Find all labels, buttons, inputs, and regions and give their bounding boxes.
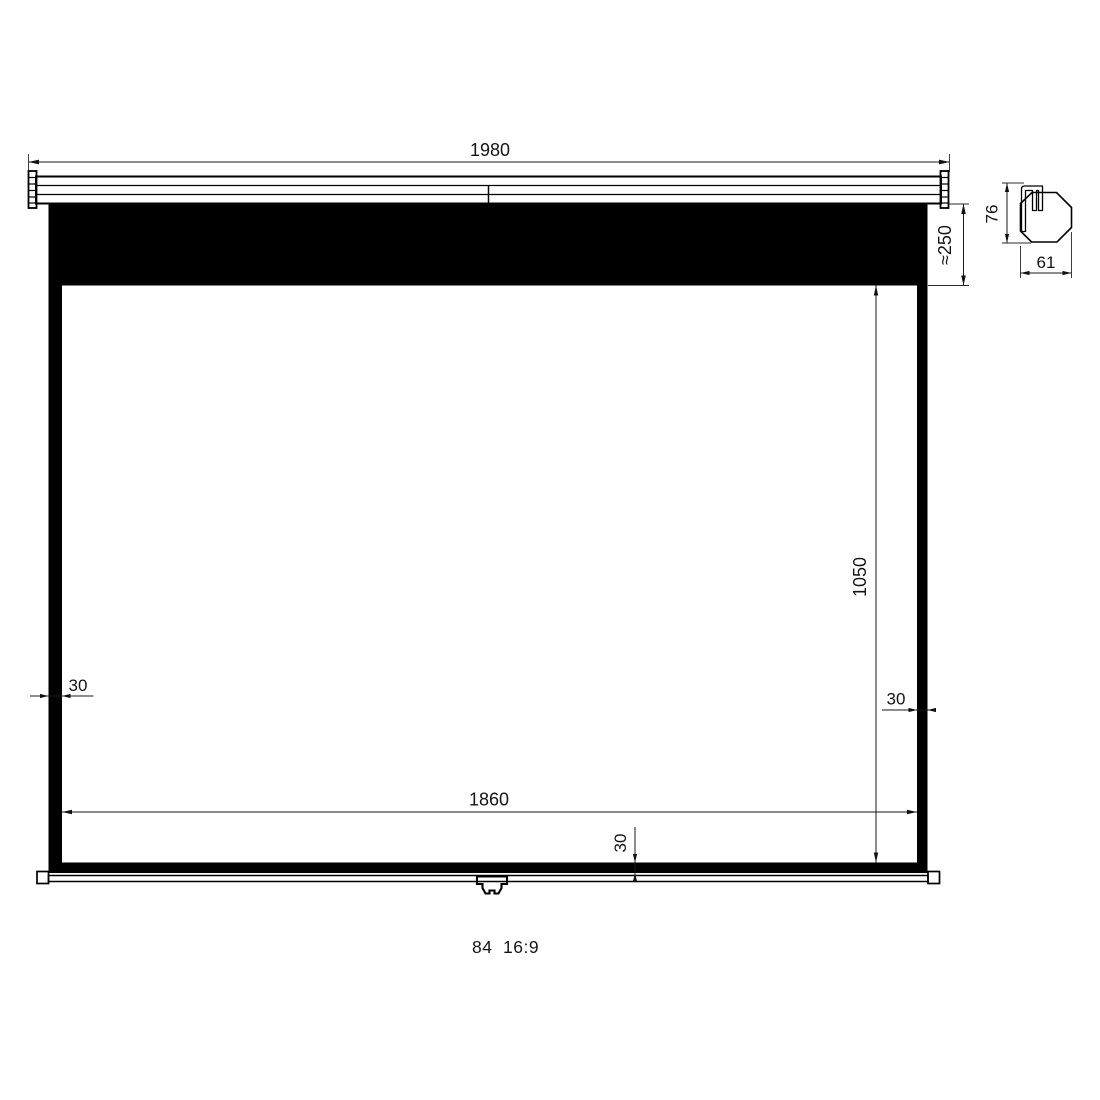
pull-handle	[477, 877, 507, 894]
arrowhead-bottom	[1005, 234, 1009, 243]
slat-end-cap-right	[928, 872, 940, 884]
caption-aspect-ratio: 16:9	[503, 937, 539, 957]
arrowhead-right	[1063, 271, 1072, 275]
dim-label-black-drop: ≈250	[935, 225, 955, 265]
screen-front-view: 1980	[29, 140, 970, 894]
dim-overall-width: 1980	[29, 140, 950, 172]
arrowhead-right	[939, 160, 950, 165]
drawing-page: 1980	[0, 0, 1100, 1100]
caption-size: 84	[472, 937, 492, 957]
arrowhead-left	[1021, 271, 1030, 275]
casing-cross-section	[1021, 193, 1072, 243]
viewing-area	[62, 286, 917, 863]
dim-label-viewing-width: 1860	[469, 790, 509, 810]
dim-label-overall-width: 1980	[470, 140, 510, 160]
dim-black-drop: ≈250	[928, 204, 969, 286]
dim-label-casing-depth: 61	[1037, 253, 1056, 272]
arrowhead	[928, 708, 937, 712]
drawing-caption: 84 16:9	[472, 937, 539, 957]
housing-bar	[29, 171, 949, 208]
technical-drawing-canvas: 1980	[0, 0, 1100, 1100]
arrowhead-top	[961, 204, 966, 214]
screen-cloth	[49, 204, 928, 873]
dim-label-right-border: 30	[887, 690, 906, 709]
arrowhead	[40, 694, 49, 698]
arrowhead-bottom	[961, 276, 966, 286]
dim-label-casing-height: 76	[983, 205, 1002, 224]
dim-label-bottom-border: 30	[611, 834, 630, 853]
arrowhead-top	[1005, 183, 1009, 192]
bottom-slat-bar	[37, 872, 940, 894]
slat-end-cap-left	[37, 872, 49, 884]
dim-label-left-border: 30	[69, 676, 88, 695]
dim-label-viewing-height: 1050	[850, 557, 870, 597]
arrowhead	[633, 873, 637, 882]
casing-side-view: 76 61	[983, 183, 1072, 278]
arrowhead-left	[29, 160, 40, 165]
